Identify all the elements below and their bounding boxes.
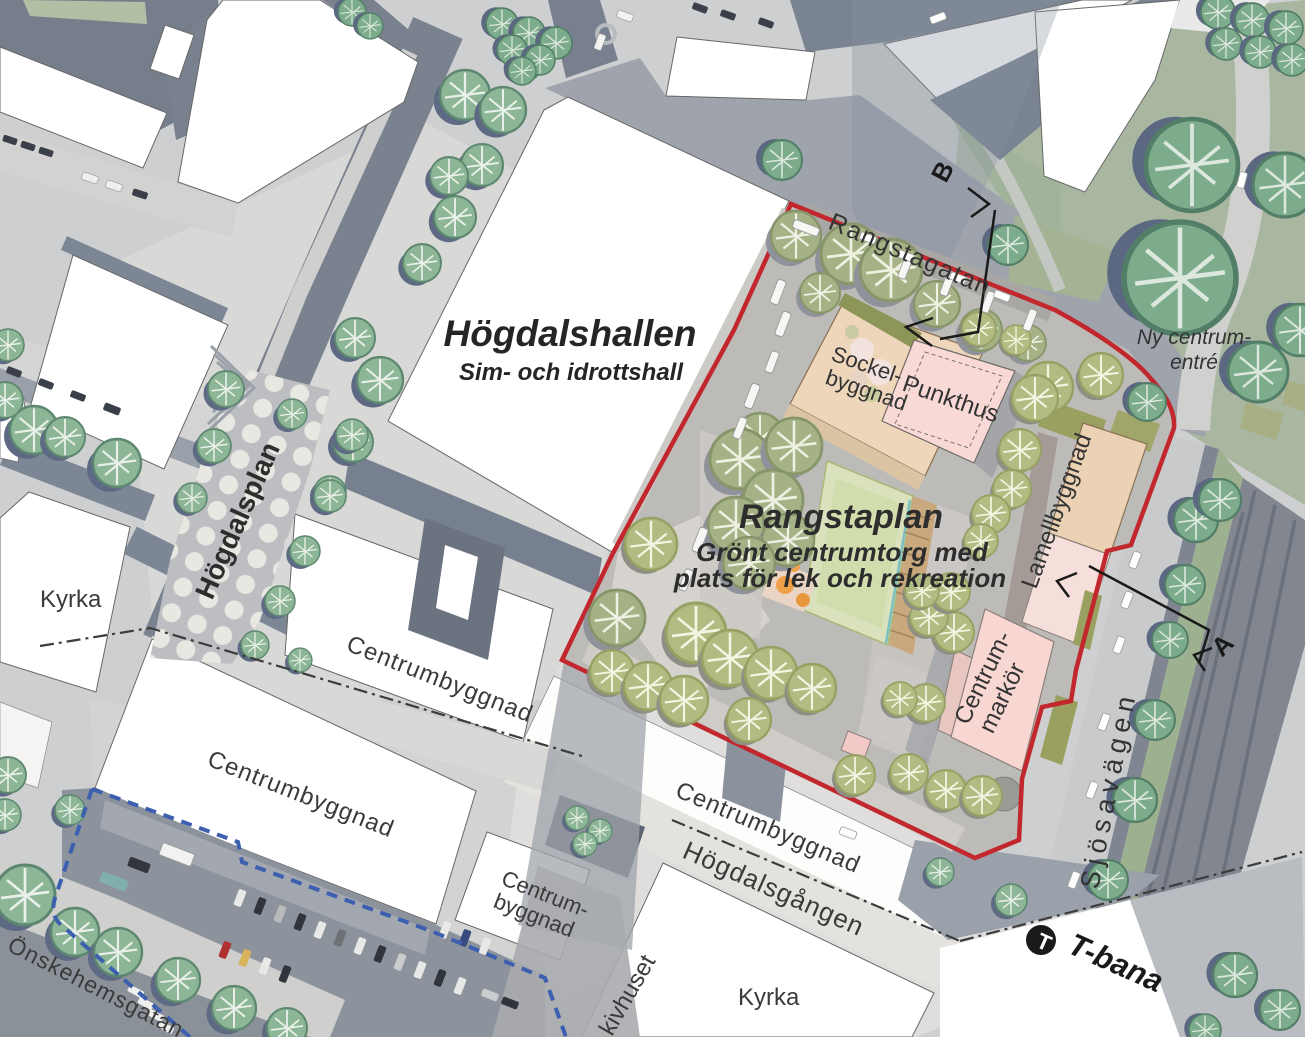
svg-text:entré: entré (1170, 351, 1218, 374)
svg-text:plats för lek och rekreation: plats för lek och rekreation (673, 563, 1006, 593)
svg-text:Kyrka: Kyrka (738, 984, 800, 1011)
svg-text:Rangstaplan: Rangstaplan (739, 498, 943, 536)
svg-text:Högdalshallen: Högdalshallen (444, 313, 697, 354)
svg-text:Ny centrum-: Ny centrum- (1137, 326, 1251, 349)
svg-text:Sim- och idrottshall: Sim- och idrottshall (459, 359, 684, 386)
svg-text:Kyrka: Kyrka (40, 586, 102, 613)
